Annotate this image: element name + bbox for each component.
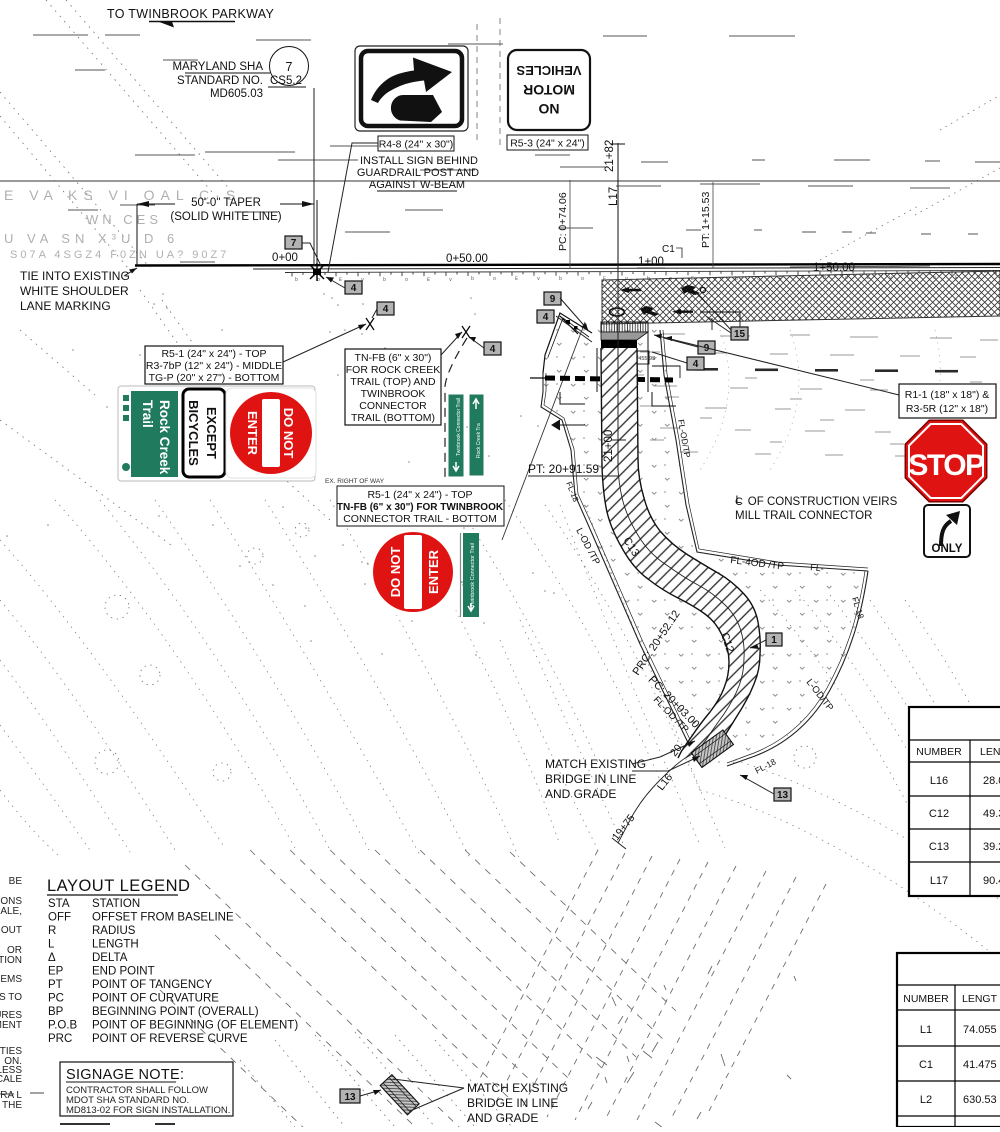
svg-text:CALE: CALE	[0, 1074, 22, 1085]
svg-text:50'-0" TAPER: 50'-0" TAPER	[191, 197, 261, 209]
svg-text:BRIDGE IN LINE: BRIDGE IN LINE	[467, 1096, 558, 1110]
svg-text:1+00: 1+00	[638, 256, 664, 268]
svg-text:v: v	[537, 276, 540, 282]
svg-text:1+50.00: 1+50.00	[813, 262, 855, 274]
svg-text:o: o	[405, 277, 408, 283]
svg-text:R: R	[48, 925, 56, 937]
svg-text:CALE,: CALE,	[0, 906, 22, 917]
svg-text:21+00: 21+00	[603, 430, 615, 462]
svg-text:MD605.03: MD605.03	[210, 88, 263, 100]
svg-text:74.055: 74.055	[963, 1024, 997, 1036]
svg-text:L: L	[48, 939, 55, 951]
svg-text:o: o	[493, 276, 496, 282]
svg-text:STANDARD NO.: STANDARD NO.	[177, 75, 263, 87]
svg-text:TRAIL (BOTTOM): TRAIL (BOTTOM)	[351, 412, 435, 424]
svg-text:LENGTH: LENGTH	[92, 939, 139, 951]
svg-text:U VA SN X³U D 6: U VA SN X³U D 6	[4, 231, 179, 246]
svg-text:POINT OF CURVATURE: POINT OF CURVATURE	[92, 993, 219, 1005]
svg-text:L1: L1	[920, 1024, 932, 1036]
svg-text:MARYLAND SHA: MARYLAND SHA	[172, 61, 263, 73]
svg-text:CL OF CONSTRUCTION VEIRS: CL OF CONSTRUCTION VEIRS	[735, 494, 898, 508]
svg-text:FOR ROCK CREEK: FOR ROCK CREEK	[346, 364, 441, 376]
svg-text:TWINBROOK: TWINBROOK	[361, 388, 426, 400]
svg-text:OFFSET FROM BASELINE: OFFSET FROM BASELINE	[92, 912, 234, 924]
svg-text:TRAIL (TOP) AND: TRAIL (TOP) AND	[350, 376, 436, 388]
svg-text:WHITE SHOULDER: WHITE SHOULDER	[20, 284, 129, 298]
svg-text:13: 13	[777, 790, 789, 801]
svg-text:WN CES: WN CES	[86, 212, 162, 227]
svg-text:9: 9	[550, 294, 556, 305]
svg-text:Twinbrook Connector Trail: Twinbrook Connector Trail	[456, 398, 462, 456]
svg-text:b: b	[383, 277, 386, 283]
svg-text:v: v	[449, 277, 452, 283]
svg-text:DELTA: DELTA	[92, 952, 128, 964]
svg-text:OFF: OFF	[48, 912, 71, 924]
svg-text:TO TWINBROOK PARKWAY: TO TWINBROOK PARKWAY	[107, 7, 274, 21]
svg-text:THE: THE	[2, 1100, 22, 1111]
svg-text:E: E	[339, 277, 342, 283]
svg-text:R4-8 (24" x 30"): R4-8 (24" x 30")	[379, 139, 454, 151]
svg-text:NO: NO	[538, 101, 559, 117]
svg-text:R3-7bP (12" x 24") - MIDDLE: R3-7bP (12" x 24") - MIDDLE	[146, 360, 282, 372]
svg-text:LENGT: LENGT	[980, 746, 1000, 758]
svg-text:STATION: STATION	[92, 898, 140, 910]
svg-text:15: 15	[734, 329, 746, 340]
svg-text:INSTALL SIGN BEHIND: INSTALL SIGN BEHIND	[360, 155, 478, 167]
svg-text:E: E	[427, 277, 430, 283]
svg-text:MENT: MENT	[0, 1020, 22, 1031]
svg-text:R5-1 (24" x 24") - TOP: R5-1 (24" x 24") - TOP	[161, 348, 266, 360]
svg-text:C12: C12	[929, 808, 949, 820]
svg-text:b: b	[471, 276, 474, 282]
svg-text:90.4: 90.4	[983, 875, 1000, 887]
svg-text:POINT OF REVERSE CURVE: POINT OF REVERSE CURVE	[92, 1033, 248, 1045]
svg-text:o: o	[581, 276, 584, 282]
svg-text:NUMBER: NUMBER	[916, 746, 962, 758]
svg-text:ENTER: ENTER	[245, 411, 260, 456]
svg-text:TN-FB (6" x 30"): TN-FB (6" x 30")	[355, 352, 432, 364]
svg-text:MOTOR: MOTOR	[523, 82, 575, 98]
svg-text:ENTER: ENTER	[426, 549, 441, 594]
svg-text:MATCH EXISTING: MATCH EXISTING	[467, 1081, 568, 1095]
svg-text:S07A 4SGZ4 F0ZN UA? 90Z7: S07A 4SGZ4 F0ZN UA? 90Z7	[10, 249, 229, 261]
svg-text:BE: BE	[9, 876, 23, 887]
svg-text:L17: L17	[930, 875, 948, 887]
svg-text:LAYOUT LEGEND: LAYOUT LEGEND	[47, 877, 190, 895]
svg-text:E: E	[515, 276, 518, 282]
svg-text:39.2: 39.2	[983, 841, 1000, 853]
svg-text:MATCH EXISTING: MATCH EXISTING	[545, 757, 646, 771]
svg-text:4: 4	[693, 359, 699, 370]
svg-text:R5-1 (24" x 24") - TOP: R5-1 (24" x 24") - TOP	[367, 489, 472, 501]
svg-text:CONNECTOR: CONNECTOR	[359, 400, 427, 412]
svg-text:41.475: 41.475	[963, 1059, 997, 1071]
svg-text:L16: L16	[930, 775, 948, 787]
svg-text:END POINT: END POINT	[92, 966, 155, 978]
svg-text:21+82: 21+82	[604, 140, 616, 172]
svg-text:Rock Creek: Rock Creek	[157, 400, 172, 475]
svg-text:EX. RIGHT OF WAY: EX. RIGHT OF WAY	[325, 478, 385, 485]
svg-text:BEGINNING POINT (OVERALL): BEGINNING POINT (OVERALL)	[92, 1006, 259, 1018]
svg-text:PT: 20+91.59: PT: 20+91.59	[528, 462, 599, 476]
svg-text:0+50.00: 0+50.00	[446, 253, 488, 265]
svg-text:4: 4	[543, 312, 549, 323]
svg-text:TIE INTO EXISTING: TIE INTO EXISTING	[20, 269, 130, 283]
svg-text:VEHICLES: VEHICLES	[516, 63, 581, 78]
svg-text:GUARDRAIL POST AND: GUARDRAIL POST AND	[357, 167, 479, 179]
svg-text:1: 1	[771, 635, 777, 646]
svg-text:4: 4	[490, 344, 496, 355]
svg-text:TG-P (20" x 27") - BOTTOM: TG-P (20" x 27") - BOTTOM	[149, 372, 280, 384]
svg-text:L17: L17	[608, 187, 620, 206]
svg-text:S TO: S TO	[0, 992, 22, 1003]
svg-text:EP: EP	[48, 966, 64, 978]
svg-text:7: 7	[286, 60, 293, 74]
svg-text:C1: C1	[919, 1059, 933, 1071]
svg-text:0+00: 0+00	[272, 252, 298, 264]
svg-text:L2: L2	[920, 1094, 932, 1106]
svg-text:Rock Creek Tra: Rock Creek Tra	[476, 423, 482, 458]
svg-text:TION: TION	[0, 955, 22, 966]
svg-text:4: 4	[383, 304, 389, 315]
svg-text:DO NOT: DO NOT	[388, 547, 403, 598]
svg-text:Twinbrook Connector Trail: Twinbrook Connector Trail	[470, 543, 476, 607]
svg-text:POINT OF TANGENCY: POINT OF TANGENCY	[92, 979, 212, 991]
svg-text:13: 13	[344, 1092, 356, 1103]
svg-text:MD813-02 FOR SIGN INSTALLATION: MD813-02 FOR SIGN INSTALLATION.	[66, 1105, 230, 1116]
svg-text:LANE MARKING: LANE MARKING	[20, 299, 111, 313]
svg-text:PT: 1+15.53: PT: 1+15.53	[700, 192, 712, 248]
svg-text:630.53: 630.53	[963, 1094, 997, 1106]
svg-text:b: b	[559, 276, 562, 282]
svg-text:CONNECTOR TRAIL - BOTTOM: CONNECTOR TRAIL - BOTTOM	[343, 513, 497, 525]
svg-text:EXCEPT: EXCEPT	[204, 407, 219, 459]
svg-text:P.O.B: P.O.B	[48, 1020, 78, 1032]
svg-text:R3-5R (12" x 18"): R3-5R (12" x 18")	[906, 403, 988, 415]
svg-text:STA: STA	[48, 898, 70, 910]
svg-text:DO NOT: DO NOT	[281, 408, 296, 459]
svg-text:49.3: 49.3	[983, 808, 1000, 820]
svg-text:LENGT: LENGT	[962, 993, 998, 1005]
svg-text:Δ: Δ	[48, 952, 56, 964]
svg-text:TN-FB (6" x 30") FOR TWINBROOK: TN-FB (6" x 30") FOR TWINBROOK	[337, 502, 504, 513]
svg-text:PRC: PRC	[48, 1033, 72, 1045]
svg-text:R5-3 (24" x 24"): R5-3 (24" x 24")	[510, 138, 585, 150]
svg-text:POINT OF BEGINNING (OF ELEMENT: POINT OF BEGINNING (OF ELEMENT)	[92, 1020, 298, 1032]
svg-text:AND GRADE: AND GRADE	[545, 787, 616, 801]
svg-text:PC: 0+74.06: PC: 0+74.06	[557, 192, 569, 251]
svg-text:MILL TRAIL CONNECTOR: MILL TRAIL CONNECTOR	[735, 510, 872, 522]
svg-text:ONLY: ONLY	[932, 543, 963, 555]
svg-text:OUT: OUT	[1, 925, 22, 936]
svg-text:AGAINST W-BEAM: AGAINST W-BEAM	[369, 179, 465, 191]
svg-text:C13: C13	[929, 841, 949, 853]
svg-text:R1-1 (18" x 18") &: R1-1 (18" x 18") &	[905, 389, 990, 401]
svg-text:C1: C1	[662, 244, 675, 255]
svg-text:STOP: STOP	[908, 449, 984, 482]
svg-text:7: 7	[291, 238, 297, 249]
svg-text:28.0: 28.0	[983, 775, 1000, 787]
svg-text:Trail: Trail	[140, 400, 155, 428]
svg-text:FL-: FL-	[810, 562, 825, 574]
svg-text:PT: PT	[48, 979, 63, 991]
svg-text:AND GRADE: AND GRADE	[467, 1111, 538, 1125]
svg-text:b: b	[295, 277, 298, 283]
svg-text:SIGNAGE NOTE:: SIGNAGE NOTE:	[66, 1067, 184, 1083]
svg-text:RADIUS: RADIUS	[92, 925, 136, 937]
svg-text:BICYCLES: BICYCLES	[186, 400, 201, 466]
svg-text:BRIDGE IN LINE: BRIDGE IN LINE	[545, 772, 636, 786]
svg-text:EMS: EMS	[0, 974, 22, 985]
svg-text:4: 4	[351, 283, 357, 294]
svg-text:NUMBER: NUMBER	[903, 993, 949, 1005]
svg-text:PC: PC	[48, 993, 64, 1005]
svg-text:BP: BP	[48, 1006, 64, 1018]
svg-text:(SOLID WHITE LINE): (SOLID WHITE LINE)	[170, 211, 281, 223]
